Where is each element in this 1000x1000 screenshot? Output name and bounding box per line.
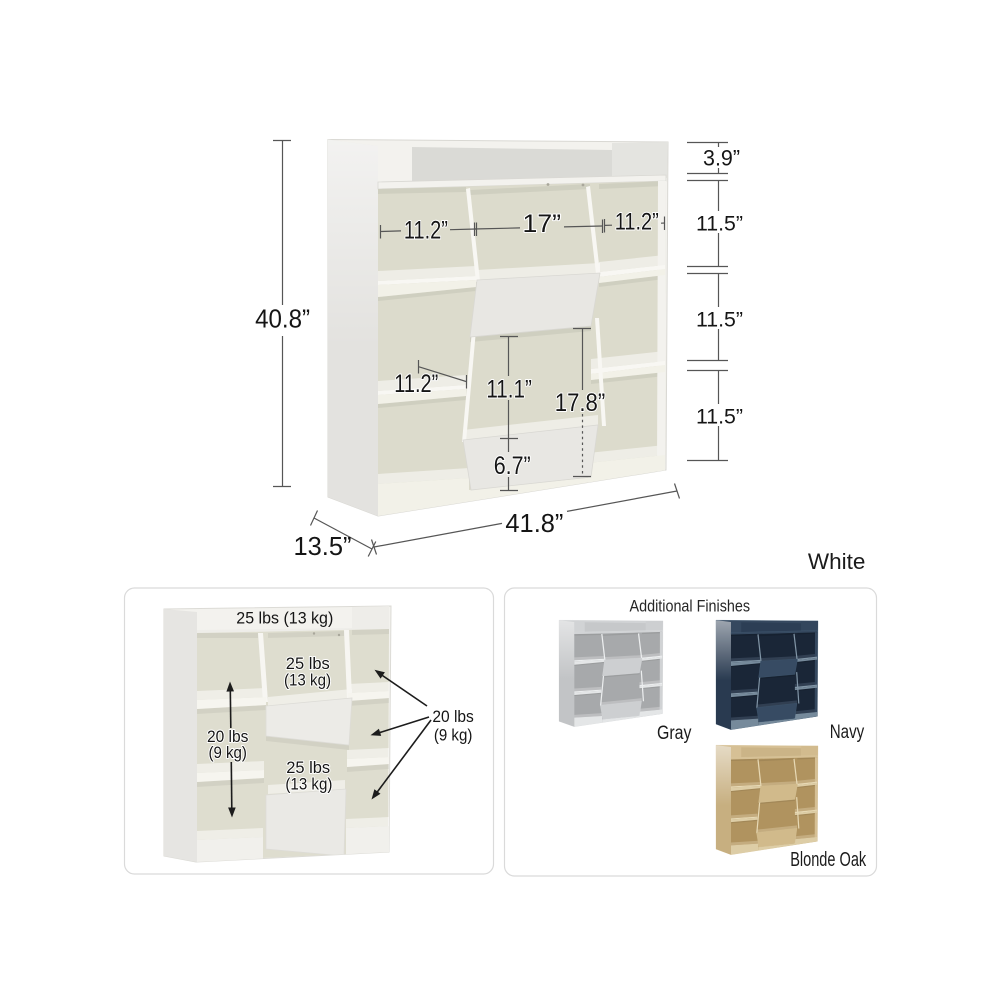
svg-text:Additional Finishes: Additional Finishes [630,597,751,616]
svg-text:41.8”: 41.8” [505,508,563,538]
svg-text:17”: 17” [523,210,562,238]
svg-text:Gray: Gray [657,723,692,744]
svg-text:40.8”: 40.8” [255,306,310,334]
svg-text:(13 kg): (13 kg) [284,671,331,690]
svg-text:White: White [808,549,866,574]
svg-text:6.7”: 6.7” [494,452,531,480]
svg-text:20 lbs: 20 lbs [432,707,474,726]
svg-text:11.1”: 11.1” [486,375,532,403]
svg-text:11.5”: 11.5” [696,212,743,236]
svg-text:Navy: Navy [830,722,865,743]
svg-text:(13 kg): (13 kg) [285,775,332,794]
svg-text:(9 kg): (9 kg) [434,725,473,744]
svg-text:11.2”: 11.2” [615,209,659,236]
svg-text:17.8”: 17.8” [555,389,606,417]
svg-text:13.5”: 13.5” [294,531,352,561]
svg-text:11.5”: 11.5” [696,404,743,428]
svg-text:Blonde Oak: Blonde Oak [790,849,867,871]
svg-text:11.5”: 11.5” [696,307,743,331]
svg-text:25 lbs (13 kg): 25 lbs (13 kg) [236,609,333,628]
svg-text:(9 kg): (9 kg) [208,743,247,762]
svg-text:11.2”: 11.2” [404,216,448,244]
svg-text:11.2”: 11.2” [394,370,438,398]
svg-text:3.9”: 3.9” [703,146,740,171]
